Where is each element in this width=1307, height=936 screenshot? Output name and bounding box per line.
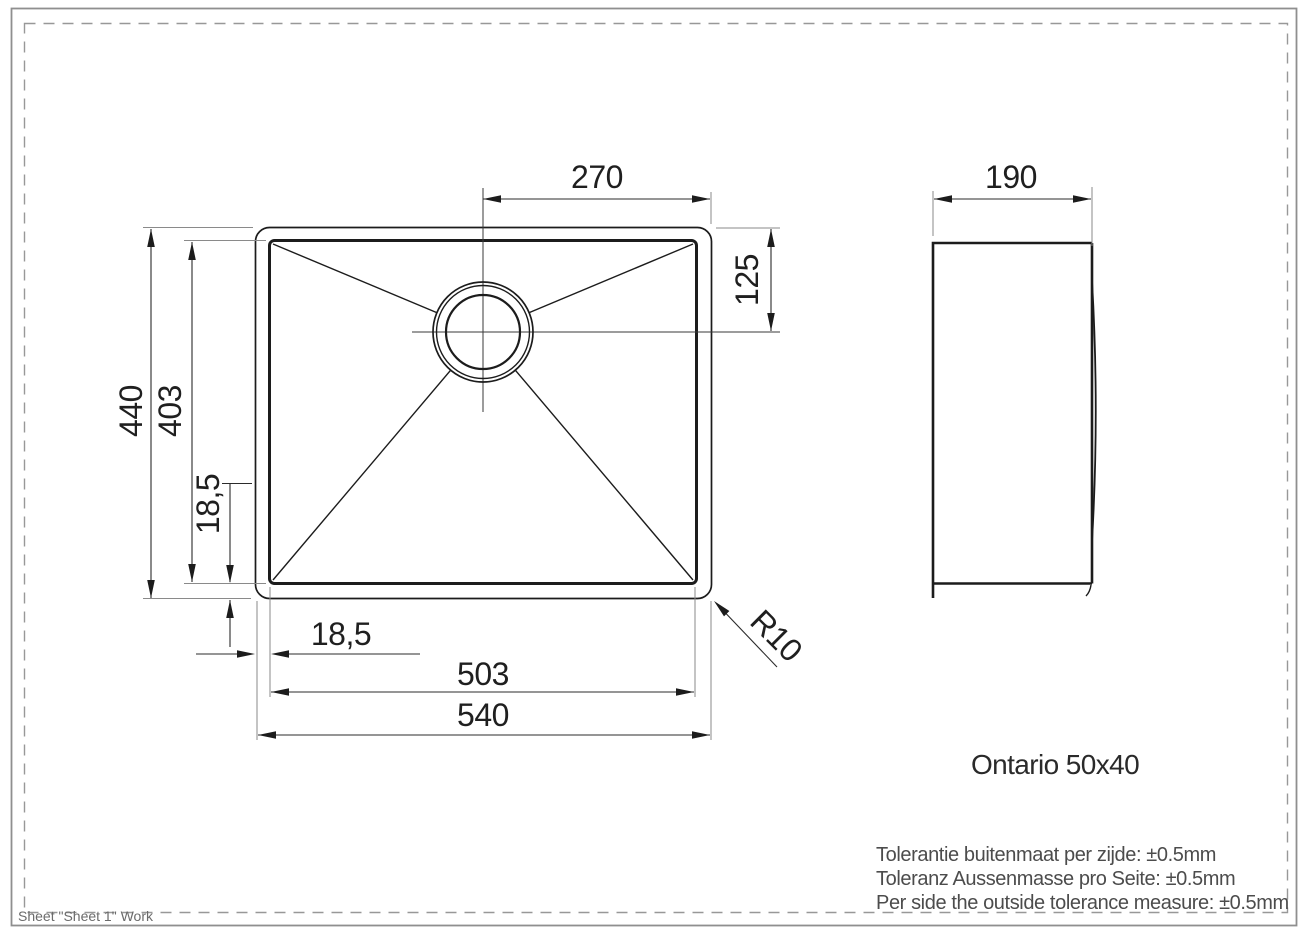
tolerance-notes: Tolerantie buitenmaat per zijde: ±0.5mm …	[876, 844, 1289, 914]
dimension-270: 270	[483, 159, 711, 224]
side-view-bottom-right-arc	[1086, 585, 1091, 596]
arrowhead-right	[1073, 195, 1091, 203]
dimension-label-540: 540	[457, 697, 509, 733]
sheet-outer-border	[12, 9, 1297, 926]
dimension-label-440: 440	[113, 385, 149, 437]
dimension-label-403: 403	[152, 385, 188, 437]
arrowhead-right	[692, 195, 710, 203]
arrowhead-top	[188, 242, 196, 260]
arrowhead-left	[934, 195, 952, 203]
dimension-190: 190	[933, 159, 1092, 246]
arrowhead-left	[271, 650, 289, 658]
arrowhead-right	[237, 650, 255, 658]
arrowhead-right	[676, 688, 694, 696]
arrowhead-top	[767, 229, 775, 247]
tolerance-note-en: Per side the outside tolerance measure: …	[876, 892, 1289, 914]
technical-drawing-canvas: 270 190 125 440 403	[0, 0, 1307, 936]
arrowhead-left	[271, 688, 289, 696]
arrowhead-top	[147, 229, 155, 247]
arrowhead-left	[483, 195, 501, 203]
arrowhead-bottom	[147, 580, 155, 598]
dimension-label-125: 125	[729, 254, 765, 306]
drawing-sheet: 270 190 125 440 403	[0, 0, 1307, 936]
sink-top-view	[256, 188, 781, 599]
dimension-label-18-5-bottom: 18,5	[311, 616, 371, 652]
arrowhead-up	[226, 600, 234, 618]
dimension-label-503: 503	[457, 656, 509, 692]
drawing-title: Ontario 50x40	[971, 749, 1139, 780]
arrowhead-bottom	[767, 313, 775, 331]
dimension-label-270: 270	[571, 159, 623, 195]
tolerance-note-de: Toleranz Aussenmasse pro Seite: ±0.5mm	[876, 868, 1235, 890]
sheet-footer-label: Sheet "Sheet 1" Work	[18, 908, 154, 924]
arrowhead-right	[692, 731, 710, 739]
arrowhead-left	[258, 731, 276, 739]
arrowhead-down	[226, 565, 234, 583]
dimension-label-18-5-left: 18,5	[190, 474, 226, 534]
radius-label-r10: R10	[743, 603, 809, 669]
side-view-top-left-profile	[933, 243, 1092, 598]
dimension-18-5-left: 18,5	[190, 474, 252, 647]
arrowhead-bottom	[188, 564, 196, 582]
dimension-125: 125	[716, 228, 780, 331]
dimension-label-190: 190	[985, 159, 1037, 195]
sink-side-view	[933, 243, 1096, 598]
tolerance-note-nl: Tolerantie buitenmaat per zijde: ±0.5mm	[876, 844, 1216, 866]
radius-callout-r10: R10	[714, 601, 809, 669]
